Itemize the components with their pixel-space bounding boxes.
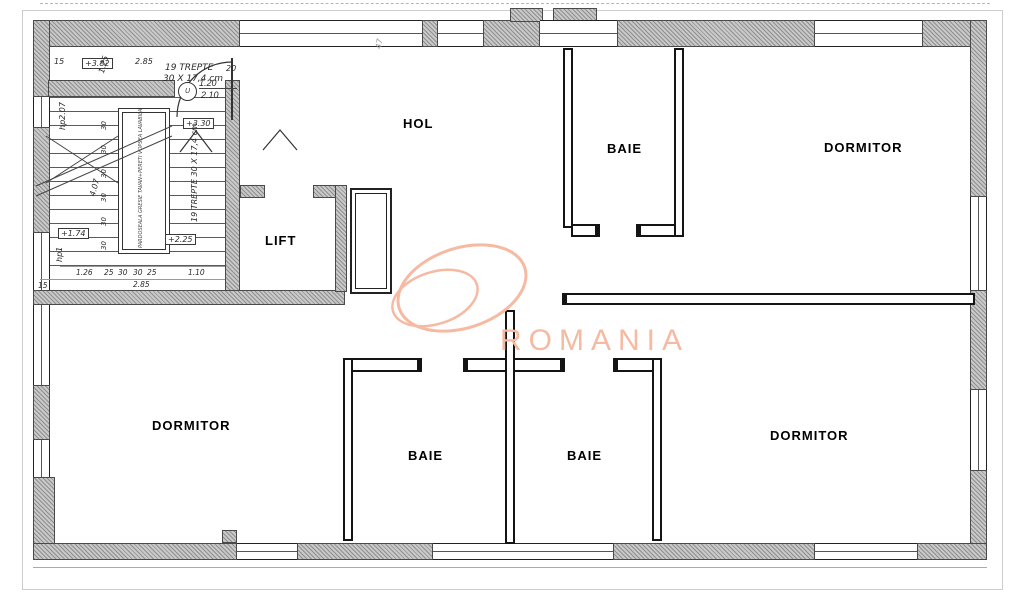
dim-25-a: 25 xyxy=(104,268,114,277)
tread-depth-1: 30 xyxy=(100,121,108,130)
stair-treads-label-2: 30 X 17,4 cm xyxy=(163,74,223,84)
tread-depth-5: 30 xyxy=(100,217,108,226)
room-label-baie-bottom-left: BAIE xyxy=(408,448,443,463)
room-label-dormitor-top-right: DORMITOR xyxy=(824,140,903,155)
door-tag-circle: U xyxy=(178,82,197,101)
dim-110: 1.10 xyxy=(188,268,205,277)
dim-hp2: hp2.07 xyxy=(58,102,67,130)
watermark-text: ROMANIA xyxy=(500,324,689,358)
dim-25-b: 25 xyxy=(147,268,157,277)
door-tag-symbol: U xyxy=(185,88,190,95)
stair-treads-label-1: 19 TREPTE xyxy=(165,63,213,73)
tread-depth-6: 30 xyxy=(100,241,108,250)
dim-285-bottom: 2.85 xyxy=(133,280,150,289)
dim-30-b: 30 xyxy=(133,268,143,277)
dim-285-top: 2.85 xyxy=(135,57,153,66)
room-label-baie-top: BAIE xyxy=(607,141,642,156)
dim-20: 20 xyxy=(226,64,236,73)
door-tag-height: 2.10 xyxy=(201,90,219,100)
tread-depth-4: 30 xyxy=(100,193,108,202)
room-label-dormitor-bottom-left: DORMITOR xyxy=(152,418,231,433)
linework xyxy=(0,0,1024,600)
stair-direction-arrow-2 xyxy=(263,130,297,150)
floor-plan: PARDOSEALA GRESIE TAVAN+PERETI VOPSEA LA… xyxy=(0,0,1024,600)
watermark-swoosh-inner xyxy=(385,260,485,337)
tread-depth-3: 30 xyxy=(100,169,108,178)
dim-126: 1.26 xyxy=(76,268,93,277)
level-225: +2.25 xyxy=(165,234,196,245)
dim-15-top: 15 xyxy=(54,57,64,66)
tread-depth-2: 30 xyxy=(100,145,108,154)
room-label-lift: LIFT xyxy=(265,233,296,248)
room-label-baie-bottom-right: BAIE xyxy=(567,448,602,463)
room-label-hol: HOL xyxy=(403,116,433,131)
stair-dim-line-1 xyxy=(60,266,225,267)
dim-47: 47 xyxy=(374,38,385,50)
dim-30-a: 30 xyxy=(118,268,128,277)
dim-hp1: hp1 xyxy=(55,247,64,262)
level-174: +1.74 xyxy=(58,228,89,239)
dim-15-bottom: 15 xyxy=(38,281,48,290)
room-label-dormitor-bottom-right: DORMITOR xyxy=(770,428,849,443)
stair-treads-label-rotated: 19 TREPTE 30 X 17,4 cm xyxy=(190,123,199,222)
